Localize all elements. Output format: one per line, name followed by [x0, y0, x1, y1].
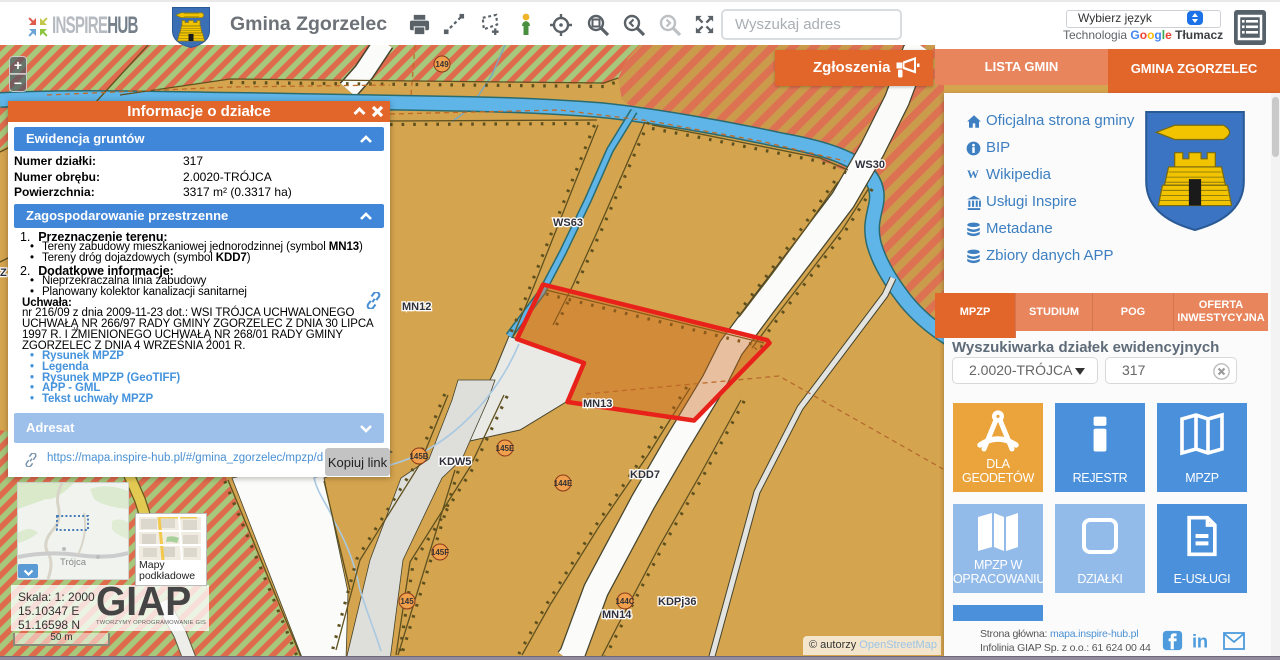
svg-text:KDW5: KDW5: [439, 456, 471, 468]
svg-text:W: W: [967, 168, 979, 181]
svg-text:KDPj36: KDPj36: [658, 596, 697, 608]
svg-text:144E: 144E: [554, 479, 573, 488]
svg-text:in: in: [1192, 630, 1208, 651]
svg-text:WS63: WS63: [553, 217, 583, 229]
svg-text:MN13: MN13: [583, 398, 612, 410]
svg-text:KDD7: KDD7: [630, 469, 660, 481]
svg-text:145B: 145B: [409, 452, 428, 461]
svg-text:Trójca: Trójca: [60, 557, 87, 568]
svg-text:145F: 145F: [431, 548, 449, 557]
svg-text:MN14: MN14: [602, 609, 632, 621]
svg-text:WS30: WS30: [855, 159, 885, 171]
svg-text:144C: 144C: [615, 597, 634, 606]
svg-text:149: 149: [435, 60, 449, 69]
svg-text:145: 145: [400, 597, 414, 606]
svg-text:Z: Z: [0, 267, 7, 279]
svg-text:MN12: MN12: [402, 301, 431, 313]
svg-text:145E: 145E: [496, 444, 515, 453]
